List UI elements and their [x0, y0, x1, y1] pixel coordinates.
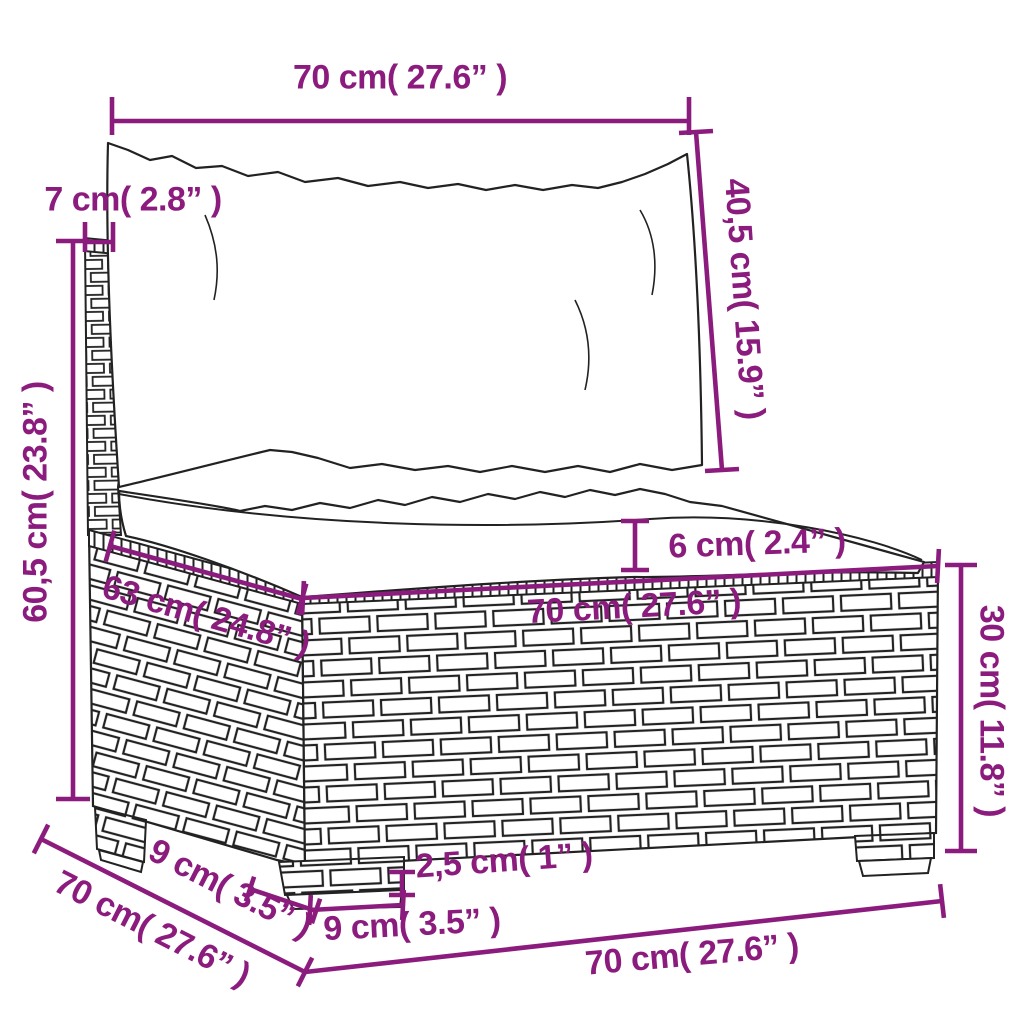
- back-frame-thickness-label: 7 cm( 2.8” ): [44, 181, 221, 220]
- dim-back-cushion-width-line: [112, 97, 689, 135]
- backrest-height-label: 60,5 cm( 23.8” ): [17, 381, 56, 622]
- seat-cushion-thickness-label: 6 cm( 2.4” ): [668, 521, 847, 566]
- front-right-foot: [859, 858, 931, 876]
- back-cushion-width-label: 70 cm( 27.6” ): [293, 59, 507, 98]
- front-left-leg: [279, 857, 404, 895]
- dimension-diagram: 70 cm( 27.6” ) 40,5 cm( 15.9” ) 7 cm( 2.…: [0, 0, 1024, 1024]
- base-height-label: 30 cm( 11.8” ): [972, 605, 1011, 817]
- front-right-leg: [855, 833, 934, 861]
